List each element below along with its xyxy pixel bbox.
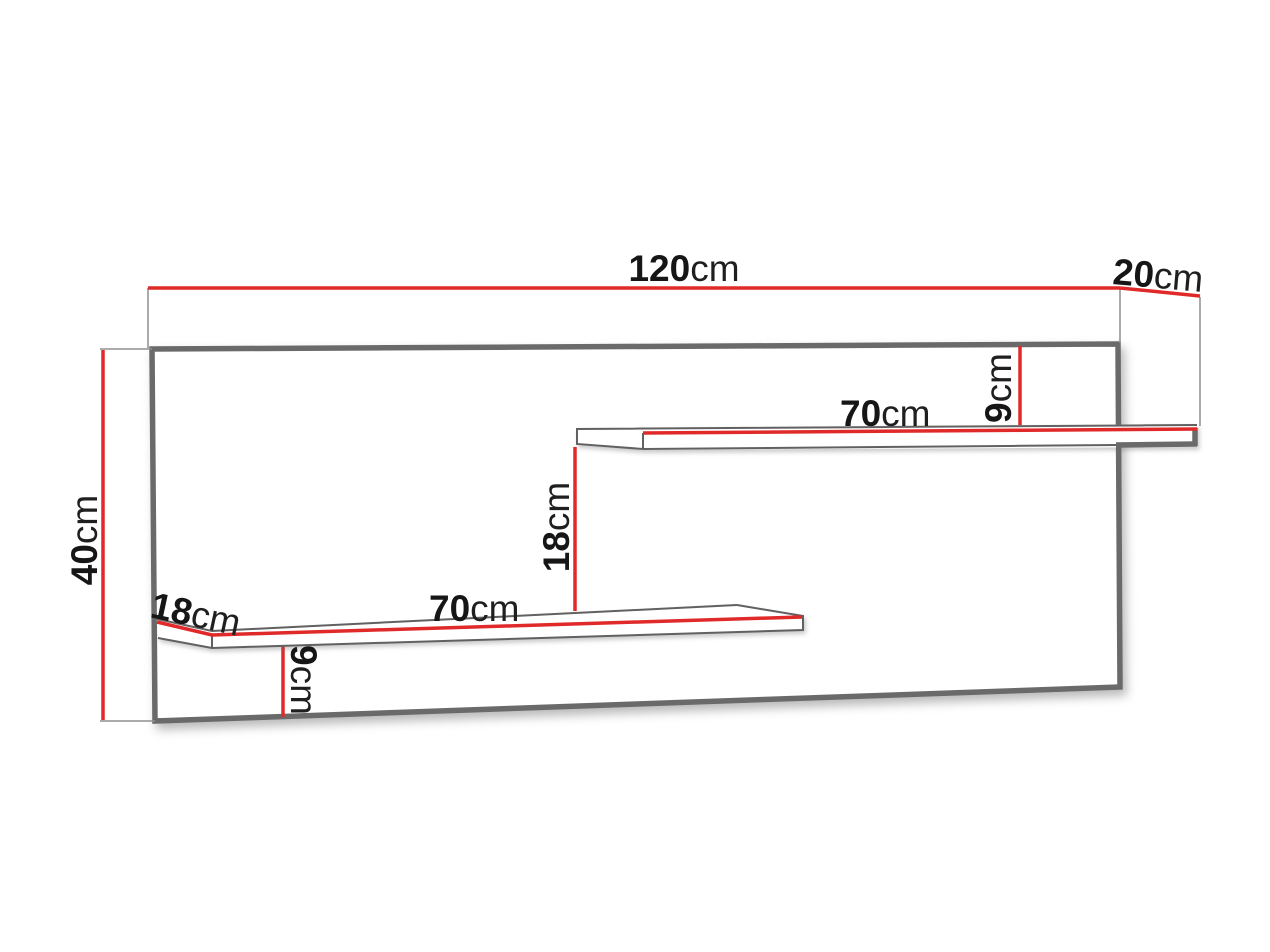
upper-shelf-right-bottom-edge	[1116, 444, 1197, 445]
shelf-gap-label: 18cm	[536, 482, 577, 572]
lower-shelf-length-label: 70cm	[429, 588, 519, 629]
upper-shelf-length-label: 70cm	[840, 393, 930, 434]
depth-dimension-label: 20cm	[1111, 251, 1205, 300]
lower-offset-label: 9cm	[283, 645, 324, 715]
width-dimension-label: 120cm	[628, 248, 739, 289]
upper-offset-label: 9cm	[978, 353, 1019, 423]
height-dimension-label: 40cm	[64, 495, 105, 585]
diagram-stage: 120cm 20cm 40cm 70cm 9cm 18cm 70cm 18cm …	[0, 0, 1270, 952]
furniture-dimension-diagram: 120cm 20cm 40cm 70cm 9cm 18cm 70cm 18cm …	[0, 0, 1270, 952]
